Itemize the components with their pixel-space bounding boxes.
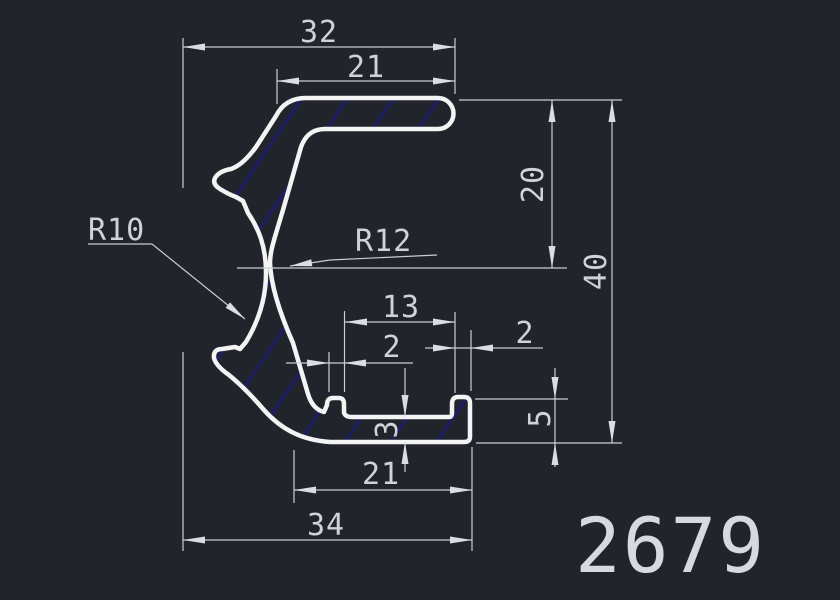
arrowhead [450, 487, 472, 494]
arrowhead [450, 537, 472, 544]
arrowhead [183, 44, 205, 51]
dim-lip-height-value: 5 [523, 408, 558, 427]
arrowhead [433, 44, 455, 51]
arrowhead [344, 360, 366, 367]
arrowhead [549, 100, 556, 122]
dim-overall-height: 40 [476, 100, 622, 443]
dim-base-thickness-value: 3 [370, 419, 405, 438]
arrowhead [433, 78, 455, 85]
arrowhead [183, 537, 205, 544]
cad-drawing: 32 21 20 40 5 13 [0, 0, 840, 600]
dim-base-span-value: 21 [362, 457, 400, 492]
arrowhead [226, 302, 245, 319]
cad-canvas: 32 21 20 40 5 13 [0, 0, 840, 600]
radius-r12-label: R12 [355, 224, 412, 259]
dim-upper-height-value: 20 [516, 165, 551, 203]
arrowhead [552, 377, 559, 399]
arrowhead [609, 421, 616, 443]
arrowhead [294, 487, 316, 494]
dim-overall-height-value: 40 [579, 252, 614, 290]
arrowhead [609, 100, 616, 122]
arrowhead [433, 345, 455, 352]
dim-slot-value: 13 [382, 290, 420, 325]
arrowhead [433, 319, 455, 326]
dim-lip-height: 5 [475, 368, 568, 467]
dim-tab-right: 2 [425, 316, 543, 391]
arrowhead [345, 319, 367, 326]
arrowhead [471, 345, 493, 352]
arrowhead [307, 360, 329, 367]
radius-callout-r12: R12 [290, 224, 437, 266]
part-number: 2679 [575, 501, 766, 590]
dim-tab-right-value: 2 [515, 316, 534, 351]
profile-outline [214, 98, 470, 442]
arrowhead [290, 259, 312, 266]
arrowhead [402, 442, 409, 464]
arrowhead [552, 443, 559, 465]
arrowhead [549, 246, 556, 268]
arrowhead [402, 395, 409, 417]
dim-bottom-overall-value: 34 [307, 508, 345, 543]
radius-callout-r10: R10 [88, 213, 245, 319]
arrowhead [277, 78, 299, 85]
dim-top-overall-value: 32 [300, 15, 338, 50]
dim-bottom-overall: 34 [183, 352, 472, 551]
dim-top-arm-value: 21 [347, 50, 385, 85]
dim-tab-left-value: 2 [382, 330, 401, 365]
radius-r10-label: R10 [88, 213, 145, 248]
